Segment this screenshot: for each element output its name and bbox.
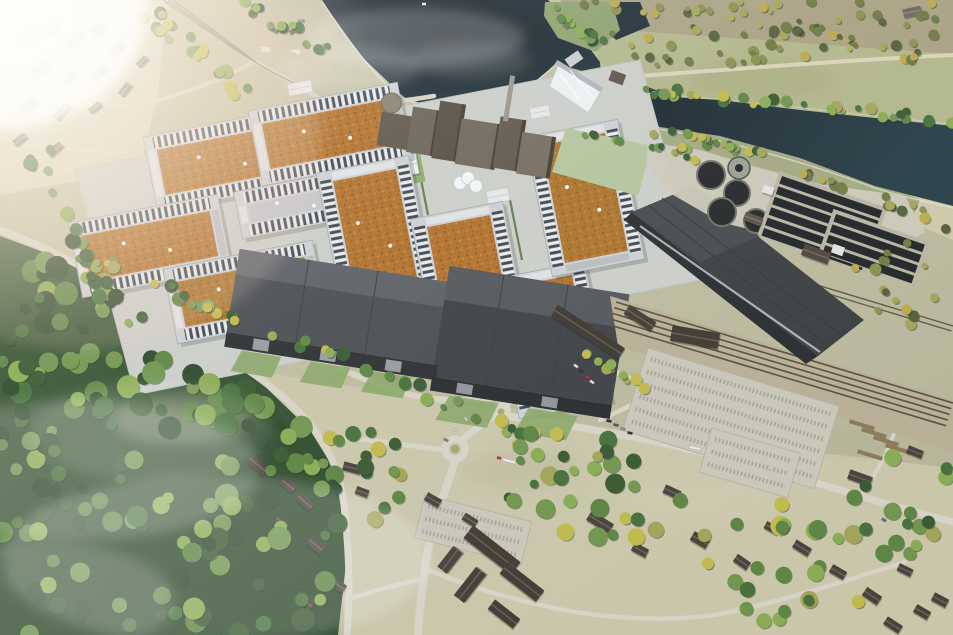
aerial-rendering-datacenter-campus	[0, 0, 953, 635]
aerial-scene	[0, 0, 953, 635]
